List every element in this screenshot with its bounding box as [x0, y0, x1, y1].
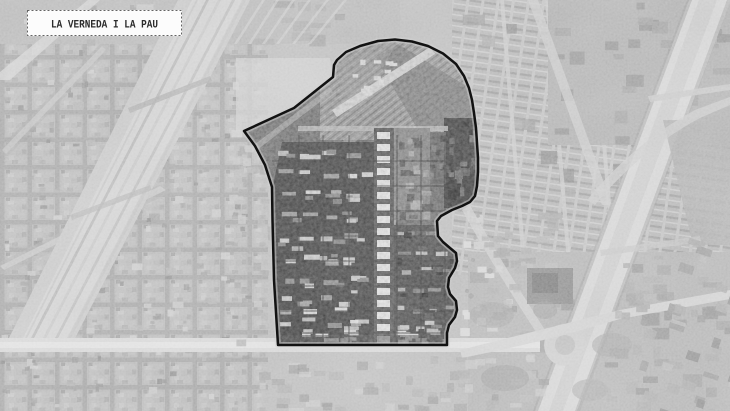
svg-text:LA VERNEDA I LA PAU: LA VERNEDA I LA PAU	[51, 20, 158, 32]
